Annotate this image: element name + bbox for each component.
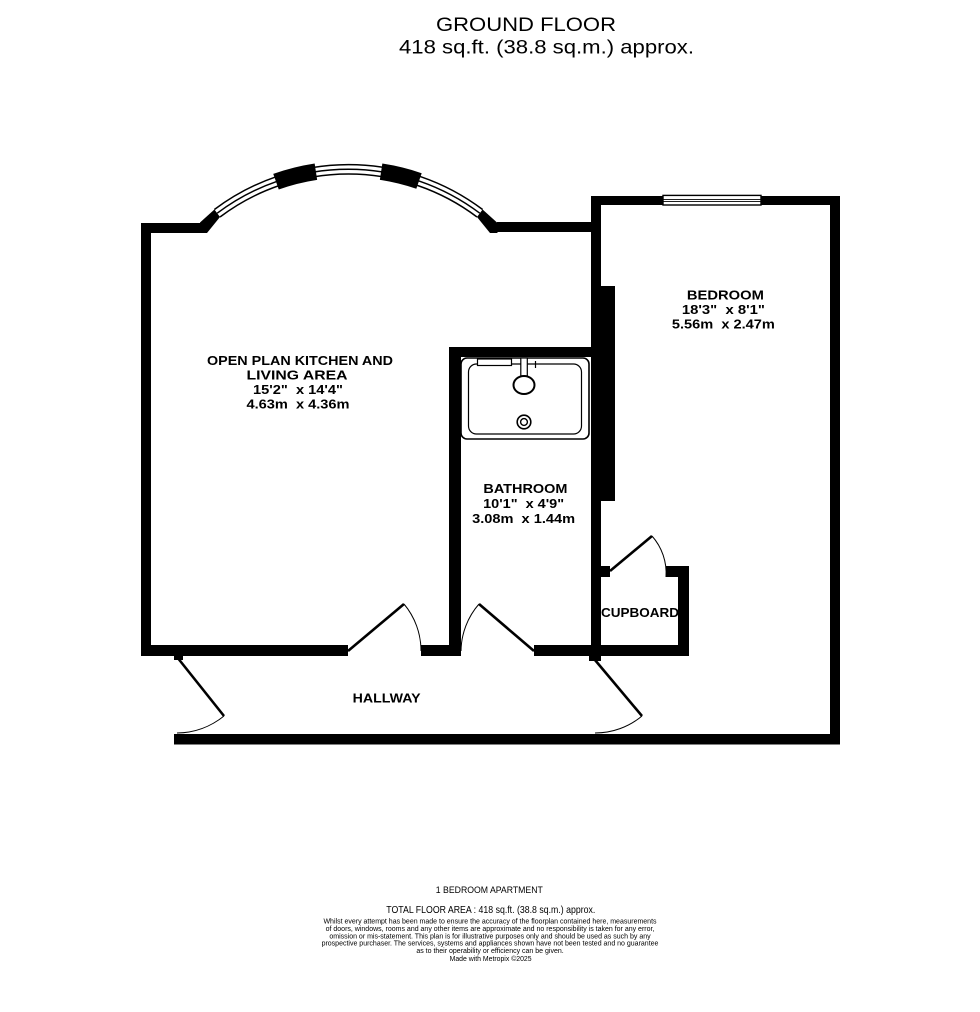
- svg-text:1 BEDROOM APARTMENT: 1 BEDROOM APARTMENT: [436, 884, 543, 895]
- svg-text:CUPBOARD: CUPBOARD: [601, 605, 679, 620]
- svg-text:prospective purchaser. The ser: prospective purchaser. The services, sys…: [322, 941, 659, 948]
- svg-text:18'3" x 8'1": 18'3" x 8'1": [682, 302, 765, 317]
- svg-text:GROUND FLOOR: GROUND FLOOR: [436, 14, 616, 36]
- svg-text:BATHROOM: BATHROOM: [483, 481, 567, 496]
- svg-text:10'1" x 4'9": 10'1" x 4'9": [483, 496, 564, 511]
- svg-text:4.63m x 4.36m: 4.63m x 4.36m: [247, 397, 350, 412]
- svg-text:TOTAL FLOOR AREA : 418 sq.ft.: TOTAL FLOOR AREA : 418 sq.ft. (38.8 sq.m…: [386, 905, 595, 916]
- svg-text:15'2" x 14'4": 15'2" x 14'4": [253, 382, 343, 397]
- svg-text:418 sq.ft. (38.8 sq.m.) approx: 418 sq.ft. (38.8 sq.m.) approx.: [399, 37, 694, 59]
- svg-text:LIVING AREA: LIVING AREA: [247, 368, 349, 383]
- svg-text:5.56m x 2.47m: 5.56m x 2.47m: [672, 317, 775, 332]
- svg-text:3.08m x 1.44m: 3.08m x 1.44m: [472, 511, 575, 526]
- svg-text:BEDROOM: BEDROOM: [687, 288, 764, 303]
- svg-text:omission or mis-statement. Thi: omission or mis-statement. This plan is …: [329, 933, 651, 940]
- svg-text:of doors, windows, rooms and a: of doors, windows, rooms and any other i…: [326, 926, 655, 933]
- svg-text:OPEN PLAN KITCHEN AND: OPEN PLAN KITCHEN AND: [207, 353, 393, 368]
- svg-text:Whilst every attempt has been: Whilst every attempt has been made to en…: [323, 919, 657, 926]
- svg-text:Made with Metropix ©2025: Made with Metropix ©2025: [450, 955, 532, 963]
- svg-text:HALLWAY: HALLWAY: [353, 691, 421, 706]
- svg-text:as to their operability or eff: as to their operability or efficiency ca…: [416, 948, 563, 955]
